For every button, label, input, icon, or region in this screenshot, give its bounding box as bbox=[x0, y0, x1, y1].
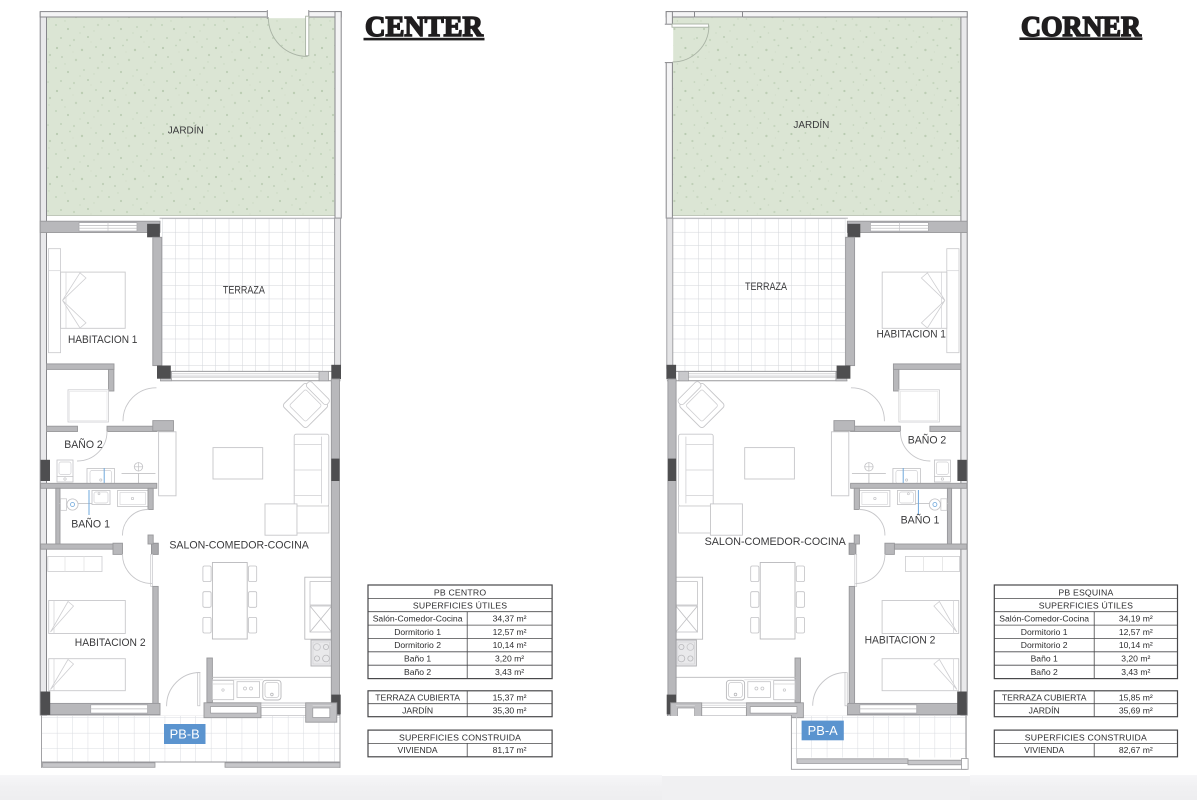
svg-text:JARDÍN: JARDÍN bbox=[793, 118, 829, 131]
svg-text:TERRAZA CUBIERTA: TERRAZA CUBIERTA bbox=[375, 692, 460, 702]
svg-text:BAÑO 1: BAÑO 1 bbox=[901, 514, 940, 527]
svg-text:HABITACION 2: HABITACION 2 bbox=[865, 635, 936, 647]
svg-text:34,37 m²: 34,37 m² bbox=[493, 614, 527, 624]
svg-text:SALON-COMEDOR-COCINA: SALON-COMEDOR-COCINA bbox=[705, 536, 847, 548]
svg-text:SUPERFICIES ÚTILES: SUPERFICIES ÚTILES bbox=[413, 601, 507, 611]
svg-text:VIVIENDA: VIVIENDA bbox=[1024, 745, 1064, 755]
svg-text:3,20 m²: 3,20 m² bbox=[495, 654, 524, 664]
svg-text:BAÑO 1: BAÑO 1 bbox=[71, 517, 110, 530]
svg-text:PB ESQUINA: PB ESQUINA bbox=[1058, 587, 1113, 597]
svg-text:35,69 m²: 35,69 m² bbox=[1119, 705, 1153, 715]
svg-text:TERRAZA CUBIERTA: TERRAZA CUBIERTA bbox=[1002, 692, 1087, 702]
svg-text:Dormitorio 2: Dormitorio 2 bbox=[394, 640, 441, 650]
svg-text:Dormitorio 1: Dormitorio 1 bbox=[1021, 627, 1068, 637]
svg-text:PB CENTRO: PB CENTRO bbox=[434, 587, 487, 597]
svg-text:3,20 m²: 3,20 m² bbox=[1121, 654, 1150, 664]
svg-text:PB-A: PB-A bbox=[808, 724, 839, 738]
svg-text:15,37 m²: 15,37 m² bbox=[493, 692, 527, 702]
svg-text:82,67 m²: 82,67 m² bbox=[1119, 745, 1153, 755]
svg-text:BAÑO 2: BAÑO 2 bbox=[64, 438, 103, 451]
svg-text:Baño 1: Baño 1 bbox=[404, 654, 431, 664]
svg-text:15,85 m²: 15,85 m² bbox=[1119, 692, 1153, 702]
svg-text:TERRAZA: TERRAZA bbox=[223, 284, 266, 296]
svg-text:12,57 m²: 12,57 m² bbox=[493, 627, 527, 637]
svg-text:SALON-COMEDOR-COCINA: SALON-COMEDOR-COCINA bbox=[169, 540, 309, 552]
svg-text:SUPERFICIES CONSTRUIDA: SUPERFICIES CONSTRUIDA bbox=[1025, 732, 1147, 742]
svg-text:HABITACION 2: HABITACION 2 bbox=[75, 637, 146, 649]
svg-text:35,30 m²: 35,30 m² bbox=[493, 705, 527, 715]
svg-text:JARDÍN: JARDÍN bbox=[168, 124, 204, 137]
svg-text:3,43 m²: 3,43 m² bbox=[1121, 667, 1150, 677]
svg-text:HABITACION 1: HABITACION 1 bbox=[68, 334, 138, 346]
svg-text:HABITACION 1: HABITACION 1 bbox=[876, 328, 946, 340]
svg-text:Salón-Comedor-Cocina: Salón-Comedor-Cocina bbox=[999, 614, 1089, 624]
svg-text:SUPERFICIES ÚTILES: SUPERFICIES ÚTILES bbox=[1039, 601, 1133, 611]
svg-text:TERRAZA: TERRAZA bbox=[745, 281, 788, 293]
svg-text:SUPERFICIES CONSTRUIDA: SUPERFICIES CONSTRUIDA bbox=[399, 732, 521, 742]
svg-text:Baño 1: Baño 1 bbox=[1031, 654, 1058, 664]
svg-text:JARDÍN: JARDÍN bbox=[1029, 705, 1060, 715]
svg-text:3,43 m²: 3,43 m² bbox=[495, 667, 524, 677]
svg-text:34,19 m²: 34,19 m² bbox=[1119, 614, 1153, 624]
svg-text:BAÑO 2: BAÑO 2 bbox=[908, 434, 947, 447]
svg-text:Baño 2: Baño 2 bbox=[1031, 667, 1058, 677]
svg-text:JARDÍN: JARDÍN bbox=[402, 705, 433, 715]
svg-text:PB-B: PB-B bbox=[170, 728, 200, 742]
svg-text:Salón-Comedor-Cocina: Salón-Comedor-Cocina bbox=[373, 614, 463, 624]
svg-text:Baño 2: Baño 2 bbox=[404, 667, 431, 677]
svg-text:Dormitorio 1: Dormitorio 1 bbox=[394, 627, 441, 637]
svg-text:VIVIENDA: VIVIENDA bbox=[398, 745, 438, 755]
svg-text:Dormitorio 2: Dormitorio 2 bbox=[1021, 640, 1068, 650]
svg-text:10,14 m²: 10,14 m² bbox=[493, 640, 527, 650]
svg-text:10,14 m²: 10,14 m² bbox=[1119, 640, 1153, 650]
svg-text:12,57 m²: 12,57 m² bbox=[1119, 627, 1153, 637]
svg-text:81,17 m²: 81,17 m² bbox=[493, 745, 527, 755]
